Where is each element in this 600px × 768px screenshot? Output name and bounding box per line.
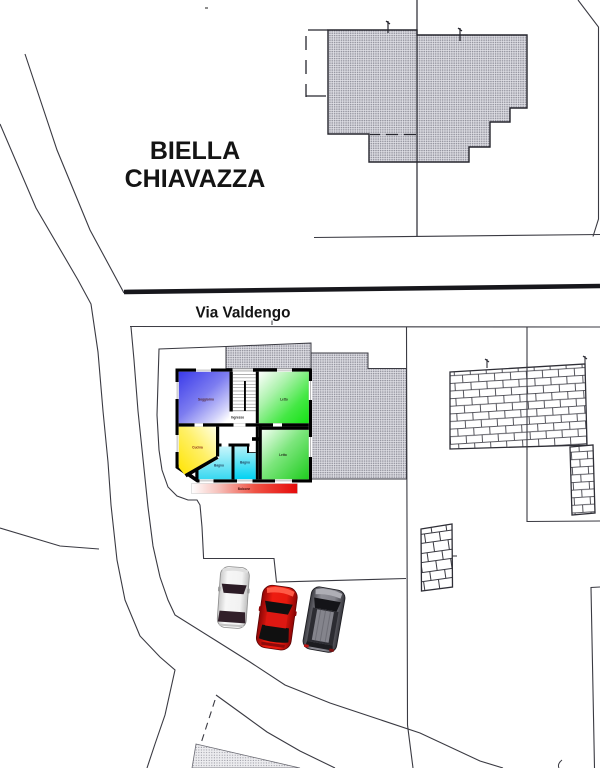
svg-text:Bagno: Bagno — [240, 460, 250, 464]
svg-text:Letto: Letto — [279, 453, 287, 457]
svg-text:CHIAVAZZA: CHIAVAZZA — [125, 165, 266, 193]
svg-text:Bagno: Bagno — [214, 464, 224, 468]
svg-text:BIELLA: BIELLA — [150, 137, 240, 165]
svg-text:Via Valdengo: Via Valdengo — [196, 305, 291, 322]
svg-text:Soggiorno: Soggiorno — [198, 398, 214, 402]
svg-text:Letto: Letto — [280, 398, 288, 402]
svg-text:Ingresso: Ingresso — [231, 415, 244, 419]
svg-text:Cucina: Cucina — [192, 446, 203, 450]
svg-text:Balcone: Balcone — [238, 487, 251, 491]
